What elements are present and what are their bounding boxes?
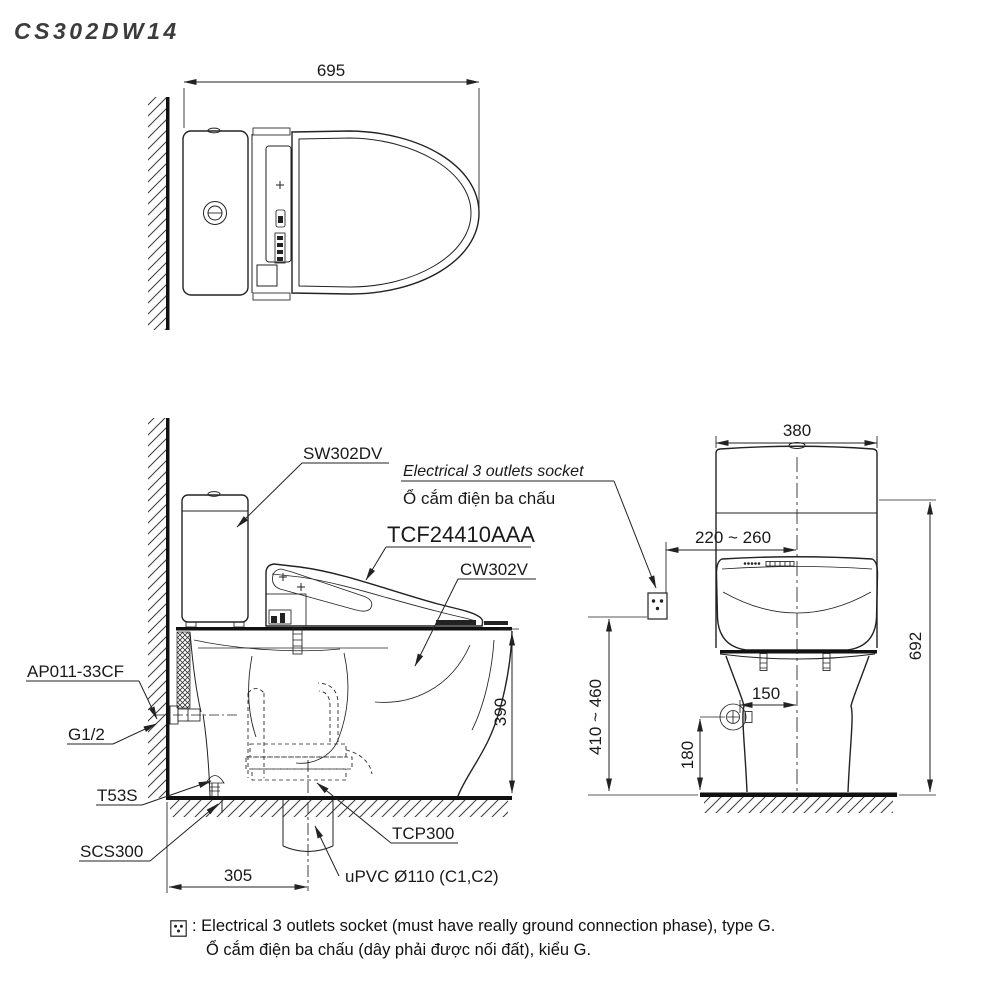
plus-icon xyxy=(279,573,287,581)
wall-line xyxy=(166,97,170,330)
label-angle-valve: T53S xyxy=(97,786,138,805)
floor-hatch xyxy=(170,800,508,817)
dim-695-text: 695 xyxy=(317,61,345,80)
label-floor-set: SCS300 xyxy=(80,842,143,861)
model-number: CS302DW14 xyxy=(14,18,180,45)
dimension-692: 692 xyxy=(879,500,936,795)
technical-drawing: 695 xyxy=(0,0,1000,1000)
label-socket-vi: Ổ cắm điện ba chấu xyxy=(403,489,555,508)
dim-180-text: 180 xyxy=(678,741,697,769)
label-drain-pipe: uPVC Ø110 (C1,C2) xyxy=(345,867,499,886)
dimension-150: 150 xyxy=(740,684,796,713)
wall-hatch xyxy=(148,97,166,330)
socket-icon xyxy=(170,920,187,937)
dim-410-460-text: 410 ~ 460 xyxy=(586,679,605,755)
dimension-390: 390 xyxy=(491,629,519,793)
wall-line xyxy=(166,418,170,799)
dim-150-text: 150 xyxy=(752,684,780,703)
dim-390-text: 390 xyxy=(491,698,510,726)
side-view-labels: SW302DV Electrical 3 outlets socket Ổ cắ… xyxy=(26,444,656,886)
wall-gasket xyxy=(177,632,190,708)
label-socket-en: Electrical 3 outlets socket xyxy=(403,463,584,480)
pedestal-front xyxy=(720,654,875,793)
dimension-220-260: 220 ~ 260 xyxy=(666,528,796,593)
dimension-695: 695 xyxy=(184,61,479,210)
label-seat-unit: TCF24410AAA xyxy=(387,522,535,547)
flush-button xyxy=(204,202,227,225)
drawing-sheet: CS302DW14 695 xyxy=(0,0,1000,1000)
label-bowl: CW302V xyxy=(460,560,529,579)
dim-380-text: 380 xyxy=(783,421,811,440)
dimension-180: 180 xyxy=(678,717,725,790)
dim-220-260-text: 220 ~ 260 xyxy=(695,528,771,547)
plus-icon xyxy=(297,583,305,591)
top-view: 695 xyxy=(148,61,479,330)
label-trap-adapter: TCP300 xyxy=(392,824,454,843)
wall-hatch xyxy=(148,418,166,798)
washlet-base-top xyxy=(252,128,291,300)
dim-692-text: 692 xyxy=(906,632,925,660)
footnote-line2: Ổ cắm điện ba chấu (dây phải được nối đấ… xyxy=(170,941,775,960)
trap-dashed xyxy=(246,683,372,780)
label-supply-hose: AP011-33CF xyxy=(27,662,124,681)
label-supply-thread: G1/2 xyxy=(68,725,105,744)
side-view: 390 305 SW302DV Electrical 3 outlets soc… xyxy=(26,418,656,893)
floor-hatch xyxy=(704,797,893,813)
cistern-top xyxy=(183,128,248,295)
lid-top xyxy=(292,131,479,294)
dimension-380: 380 xyxy=(716,421,877,448)
seat-buttons xyxy=(744,562,794,567)
floor-line xyxy=(700,793,897,798)
footnote-line1: : Electrical 3 outlets socket (must have… xyxy=(192,917,775,936)
plus-icon xyxy=(276,181,284,189)
footnote: : Electrical 3 outlets socket (must have… xyxy=(170,917,775,960)
socket-icon xyxy=(648,593,667,619)
dim-305-text: 305 xyxy=(224,866,252,885)
label-cistern: SW302DV xyxy=(303,444,383,463)
floor-line xyxy=(166,796,512,800)
fixing-bolt xyxy=(293,628,302,654)
cistern-side xyxy=(182,492,248,627)
bowl-side xyxy=(176,627,512,796)
front-view: 380 220 ~ 260 692 410 ~ 460 xyxy=(586,421,936,813)
